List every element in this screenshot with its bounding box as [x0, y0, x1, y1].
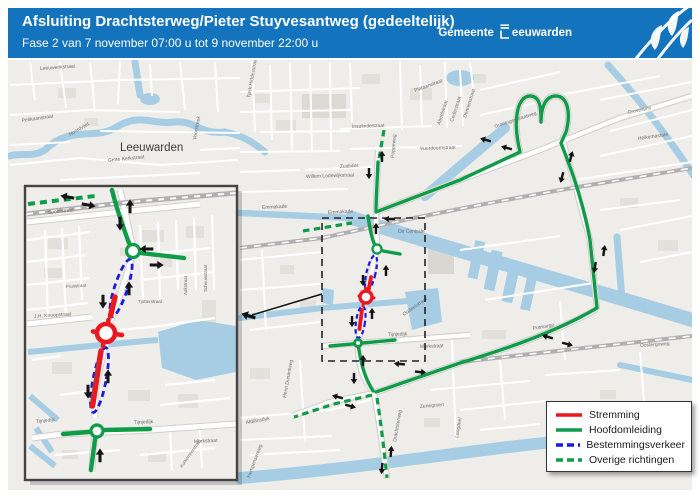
tijnjedijk-junction-green: [355, 340, 362, 347]
legend-line-solid-red: [555, 411, 583, 419]
street-label: Zuidvliet: [340, 163, 360, 170]
decorative-swirl: [577, 8, 692, 58]
inset-green-roundabout-south: [91, 425, 103, 437]
legend-label: Bestemmingsverkeer: [586, 439, 685, 451]
street-label: Leeuwarden: [120, 142, 183, 154]
street-label: Aakstraat: [183, 275, 188, 295]
street-label: Murkstraat: [420, 343, 444, 350]
page-subtitle: Fase 2 van 7 november 07:00 u tot 9 nove…: [22, 36, 318, 50]
inset-map: SpoorstraatJ.H. KnoopstraatFruitstraatTj…: [25, 186, 242, 485]
closure-roundabout-marker: [360, 291, 372, 303]
legend-row-stremming: Stremming: [555, 407, 685, 422]
street-label: Tjotterstraat: [138, 299, 163, 304]
gemeente-leeuwarden-logo: Gemeente eeuwarden: [438, 24, 572, 39]
page-title: Afsluiting Drachtsterweg/Pieter Stuyvesa…: [22, 13, 455, 30]
street-label: Vuurdoornstraat: [420, 145, 456, 152]
header-bar: Afsluiting Drachtsterweg/Pieter Stuyvesa…: [8, 8, 692, 58]
street-label: Tijnjedijk: [388, 331, 408, 338]
street-label: De Centrale: [398, 229, 425, 235]
street-label: Schouwstraat: [203, 264, 208, 292]
legend-label: Overige richtingen: [589, 454, 674, 466]
legend-label: Hoofdomleiding: [589, 424, 662, 436]
legend-row-hoofdomleiding: Hoofdomleiding: [555, 422, 685, 437]
flyer-page: Afsluiting Drachtsterweg/Pieter Stuyvesa…: [0, 0, 700, 496]
legend-row-bestemmingsverkeer: Bestemmingsverkeer: [555, 437, 685, 452]
inset-closure-roundabout: [97, 324, 115, 342]
legend-line-dashed-green: [555, 456, 583, 464]
legend-line-dashed-blue: [555, 441, 580, 449]
inset-green-roundabout-north: [127, 245, 140, 258]
junction-roundabout-green: [373, 245, 382, 254]
legend-label: Stremming: [589, 409, 640, 421]
legend-line-solid-green: [555, 426, 583, 434]
logo-word-leeuwarden: eeuwarden: [512, 27, 572, 39]
street-label: Tijnjedijk: [134, 419, 154, 426]
legend-box: Stremming Hoofdomleiding Bestemmingsverk…: [546, 401, 692, 472]
logo-l-mark: [499, 24, 511, 39]
logo-word-gemeente: Gemeente: [438, 27, 494, 39]
legend-row-overige-richtingen: Overige richtingen: [555, 452, 685, 467]
street-label: Insulindestraat: [352, 123, 385, 130]
